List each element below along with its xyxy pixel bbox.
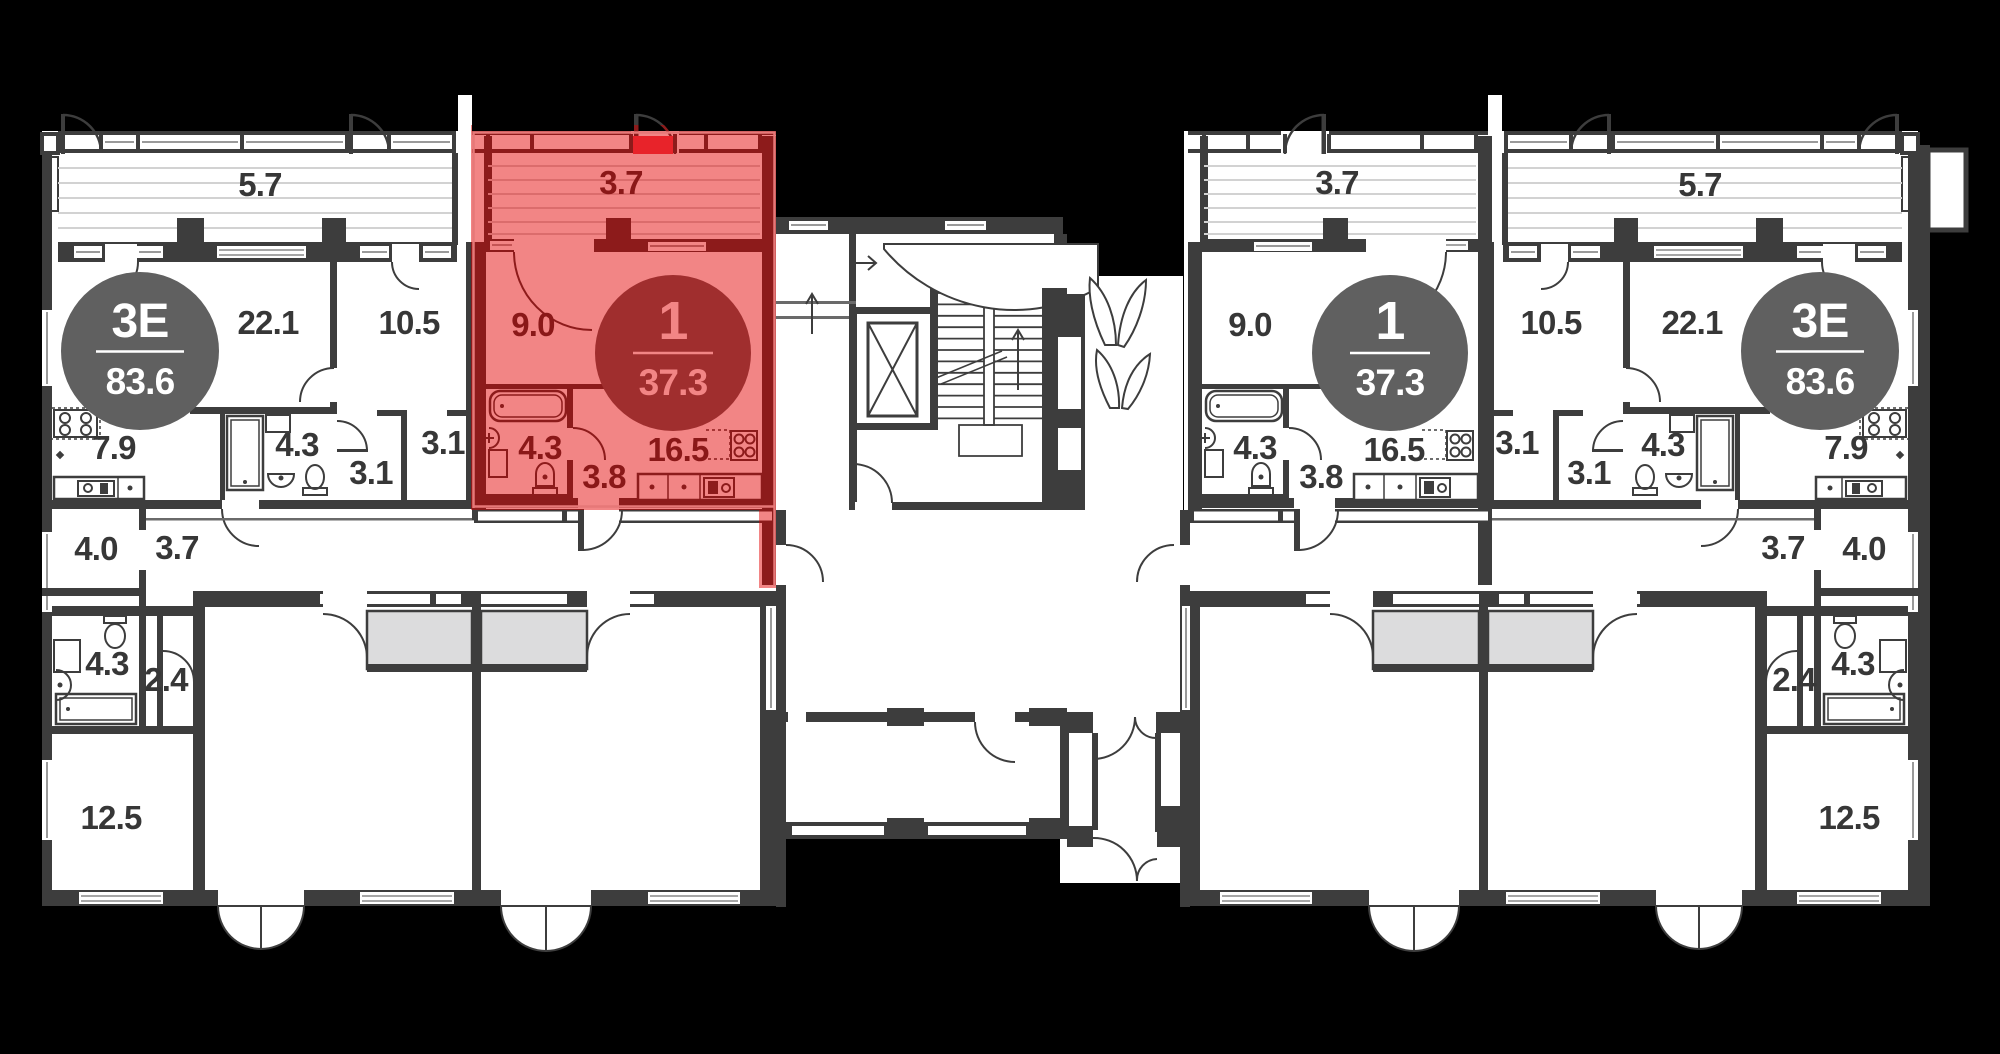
svg-text:3E: 3E [1791,295,1848,348]
svg-text:4.0: 4.0 [74,530,117,567]
svg-text:10.5: 10.5 [1520,304,1581,341]
svg-text:2.4: 2.4 [144,661,189,698]
svg-text:7.9: 7.9 [1824,429,1868,466]
svg-text:83.6: 83.6 [1786,361,1855,402]
svg-text:12.5: 12.5 [80,799,141,836]
svg-text:9.0: 9.0 [1228,306,1271,343]
svg-text:12.5: 12.5 [1818,799,1879,836]
svg-text:22.1: 22.1 [1661,304,1722,341]
svg-text:37.3: 37.3 [1356,362,1425,403]
svg-text:83.6: 83.6 [106,361,175,402]
svg-text:5.7: 5.7 [238,166,281,203]
svg-text:5.7: 5.7 [1678,166,1721,203]
svg-text:3.7: 3.7 [1315,164,1358,201]
svg-text:3.1: 3.1 [1495,424,1539,461]
svg-text:4.3: 4.3 [1641,426,1685,463]
svg-text:4.0: 4.0 [1842,530,1885,567]
svg-text:10.5: 10.5 [378,304,439,341]
svg-text:1: 1 [1375,291,1404,351]
svg-text:4.3: 4.3 [85,645,129,682]
svg-text:3.1: 3.1 [349,454,393,491]
svg-text:3.1: 3.1 [1567,454,1611,491]
svg-text:4.3: 4.3 [1233,429,1277,466]
svg-text:4.3: 4.3 [1831,645,1875,682]
svg-text:2.4: 2.4 [1772,661,1817,698]
svg-text:3.8: 3.8 [1299,458,1343,495]
svg-text:3E: 3E [111,295,168,348]
svg-text:3.7: 3.7 [155,529,198,566]
svg-text:16.5: 16.5 [1363,431,1424,468]
svg-text:22.1: 22.1 [237,304,298,341]
svg-text:4.3: 4.3 [275,426,319,463]
svg-text:3.1: 3.1 [421,424,465,461]
svg-text:7.9: 7.9 [92,429,136,466]
svg-text:3.7: 3.7 [1761,529,1804,566]
